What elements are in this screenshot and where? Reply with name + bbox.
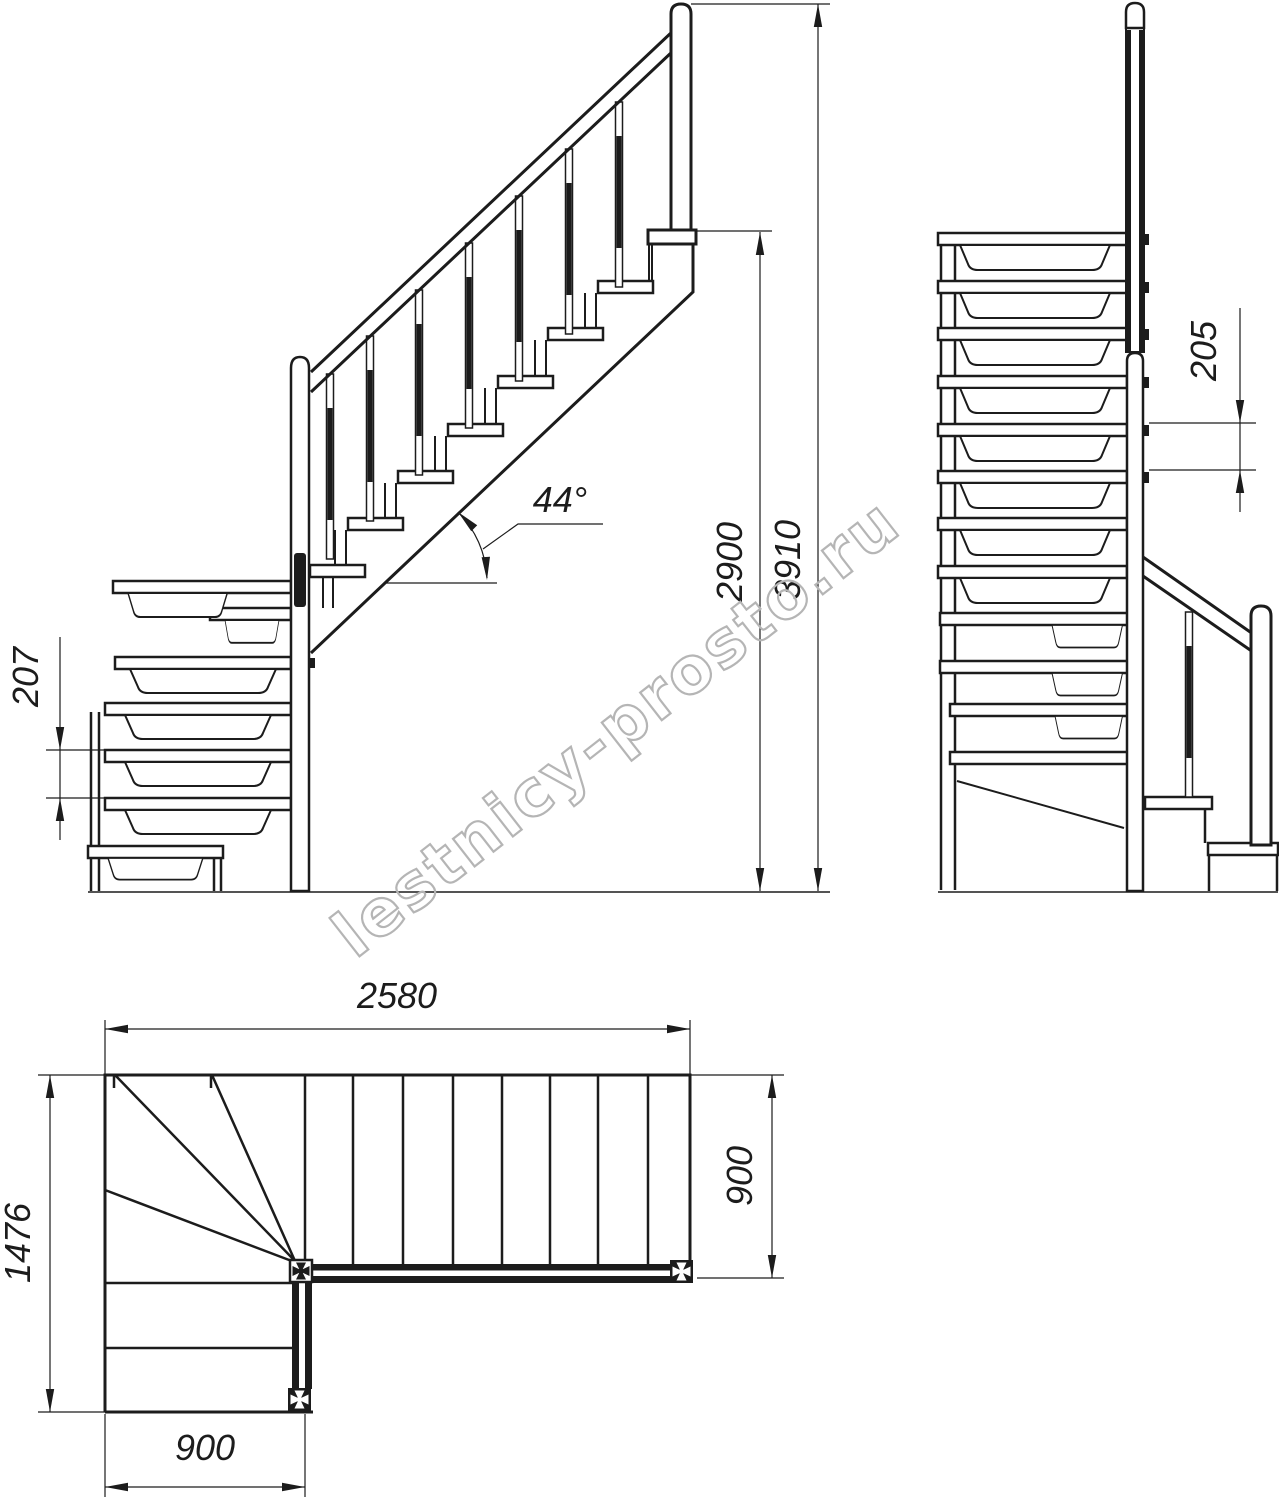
rail-post	[1126, 3, 1149, 891]
front-elevation-view: 205	[938, 3, 1278, 892]
dim-slope-angle: 44°	[533, 479, 587, 520]
lower-steps-stack	[88, 581, 291, 880]
dim-2580-group: 2580	[105, 975, 690, 1075]
corner-post-symbol	[290, 1260, 312, 1282]
dim-upper-flight-width: 900	[719, 1146, 760, 1206]
winder-lines	[105, 1075, 297, 1263]
baluster	[1186, 612, 1193, 797]
handrail	[1143, 557, 1253, 652]
top-newel-post	[648, 4, 696, 244]
dim-lower-flight-width: 900	[175, 1427, 235, 1468]
dim-900-bottom-group: 900	[105, 1414, 305, 1497]
tread-lines	[305, 1075, 648, 1264]
dim-total-length: 2580	[356, 975, 437, 1016]
top-post-symbol	[670, 1260, 693, 1283]
angle-leader	[483, 524, 603, 549]
stair-blueprint: 44° 207 2900 3910	[0, 0, 1279, 1500]
watermark-text: lestnicy-prosto.ru	[320, 485, 915, 973]
plan-view: 2580 1476 900 900	[0, 975, 784, 1497]
bottom-newel-post	[291, 357, 315, 891]
stair-drawing-page: 44° 207 2900 3910	[0, 0, 1279, 1500]
handrail-plan	[292, 1264, 688, 1389]
dim-207-group: 207	[5, 637, 112, 840]
lower-tread-lines	[105, 1283, 292, 1348]
dim-205-group: 205	[1149, 308, 1256, 512]
stringer-line	[957, 781, 1124, 828]
angle-arc	[458, 512, 487, 578]
dim-step-rise-side: 207	[5, 645, 46, 708]
bottom-post-symbol	[288, 1388, 311, 1411]
steps-stack	[938, 233, 1135, 764]
newel-post	[1251, 606, 1271, 845]
dim-2900-group: 2900	[696, 231, 772, 891]
plan-outline	[105, 1075, 690, 1412]
dim-step-rise-front: 205	[1183, 320, 1224, 382]
dim-900-right-group: 900	[690, 1075, 784, 1278]
side-elevation-view: 44° 207 2900 3910	[5, 4, 830, 892]
dim-total-width: 1476	[0, 1202, 38, 1283]
dim-1476-group: 1476	[0, 1075, 105, 1412]
main-flight-steps	[310, 244, 653, 608]
